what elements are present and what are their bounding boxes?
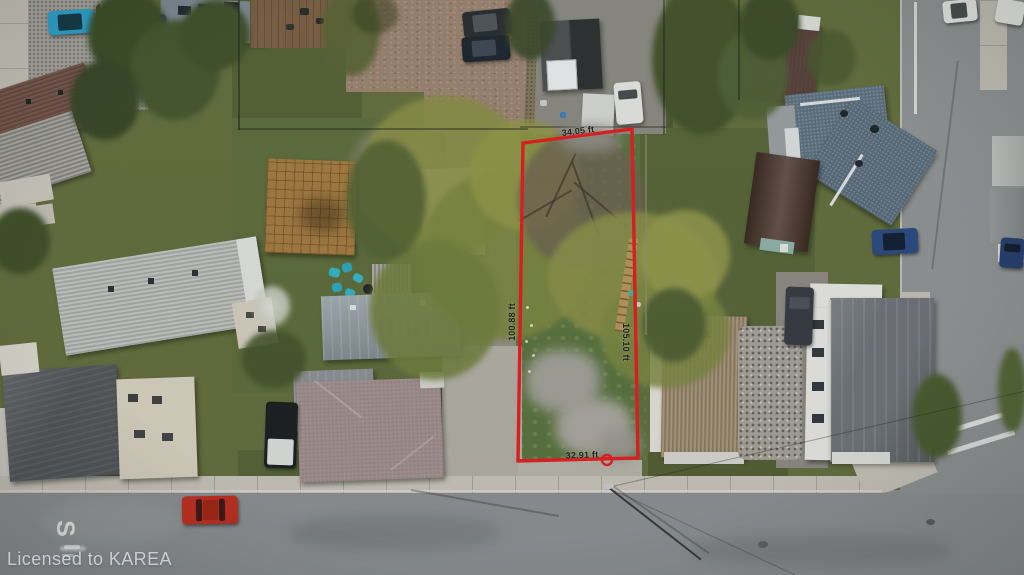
- lot-boundary-overlay: [0, 0, 1024, 575]
- watermark: Licensed to KAREA: [7, 549, 172, 570]
- measurement-label-right: 105.10 ft: [621, 316, 631, 368]
- aerial-photo: S: [0, 0, 1024, 575]
- measurement-label-left: 100.88 ft: [507, 296, 517, 348]
- lot-boundary-polygon: [518, 129, 638, 461]
- measurement-label-bottom: 32.91 ft: [556, 449, 608, 461]
